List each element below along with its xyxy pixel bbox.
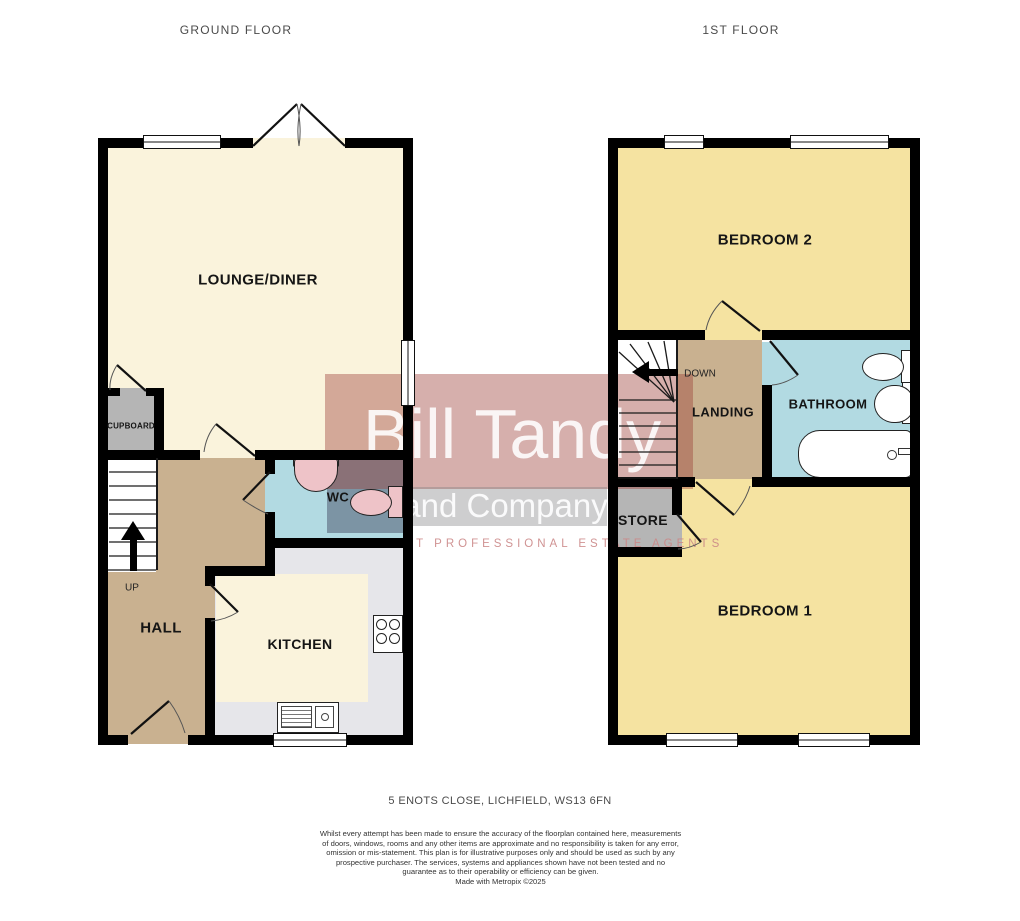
room-label-cupboard: CUPBOARD	[107, 422, 155, 431]
room-label-lounge: LOUNGE/DINER	[198, 272, 318, 289]
room-label-wc: WC	[327, 490, 349, 505]
room-label-landing: LANDING	[692, 405, 754, 420]
property-address: 5 ENOTS CLOSE, LICHFIELD, WS13 6FN	[388, 795, 611, 807]
room-label-store: STORE	[618, 512, 668, 528]
stairs-up-label: UP	[125, 583, 139, 594]
room-label-kitchen: KITCHEN	[267, 636, 332, 652]
up-arrow-stem	[130, 538, 137, 571]
down-arrow-icon	[632, 361, 649, 383]
door-and-stair-linework	[0, 0, 1020, 921]
room-label-bedroom1: BEDROOM 1	[718, 603, 812, 620]
room-label-bathroom: BATHROOM	[789, 397, 868, 412]
down-arrow-stem	[648, 369, 678, 376]
ground-floor-title: GROUND FLOOR	[180, 23, 292, 37]
floorplan-page: GROUND FLOOR 1ST FLOOR	[0, 0, 1020, 921]
metropix-credit: Made with Metropix ©2025	[318, 877, 683, 887]
room-label-hall: HALL	[140, 620, 182, 637]
disclaimer-text: Whilst every attempt has been made to en…	[318, 829, 683, 887]
up-arrow-icon	[121, 521, 145, 540]
disclaimer-paragraph: Whilst every attempt has been made to en…	[318, 829, 683, 877]
room-label-bedroom2: BEDROOM 2	[718, 232, 812, 249]
first-floor-title: 1ST FLOOR	[702, 23, 779, 37]
stairs-down-label: DOWN	[684, 369, 716, 380]
